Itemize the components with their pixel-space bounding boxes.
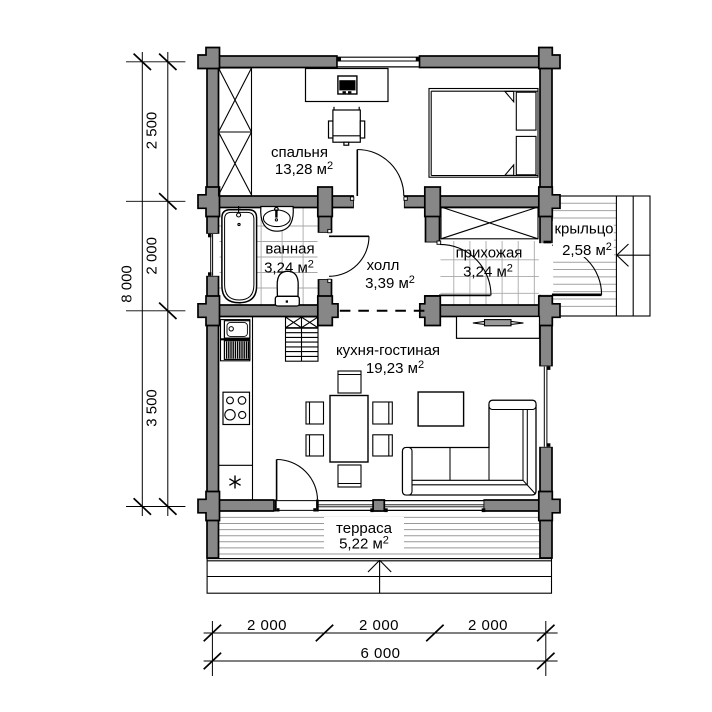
svg-text:2,58 м2: 2,58 м2 <box>562 241 612 259</box>
svg-text:19,23 м2: 19,23 м2 <box>366 359 424 377</box>
svg-text:2 000: 2 000 <box>468 617 508 634</box>
svg-text:холл: холл <box>367 257 400 274</box>
svg-text:кухня-гостиная: кухня-гостиная <box>336 342 440 359</box>
svg-text:3 500: 3 500 <box>144 389 161 427</box>
svg-text:3,39 м2: 3,39 м2 <box>365 274 415 292</box>
svg-text:8 000: 8 000 <box>119 265 136 303</box>
svg-text:спальня: спальня <box>271 144 328 161</box>
svg-text:прихожая: прихожая <box>456 245 523 262</box>
svg-text:3,24 м2: 3,24 м2 <box>264 259 314 277</box>
svg-text:2 000: 2 000 <box>359 617 399 634</box>
svg-text:2 000: 2 000 <box>247 617 287 634</box>
svg-text:6 000: 6 000 <box>360 645 400 662</box>
svg-text:2 000: 2 000 <box>144 237 161 275</box>
svg-text:13,28 м2: 13,28 м2 <box>275 160 333 178</box>
svg-text:5,22 м2: 5,22 м2 <box>339 535 389 553</box>
svg-text:2 500: 2 500 <box>144 112 161 150</box>
svg-text:ванная: ванная <box>265 241 314 258</box>
svg-text:крыльцо: крыльцо <box>554 221 613 238</box>
